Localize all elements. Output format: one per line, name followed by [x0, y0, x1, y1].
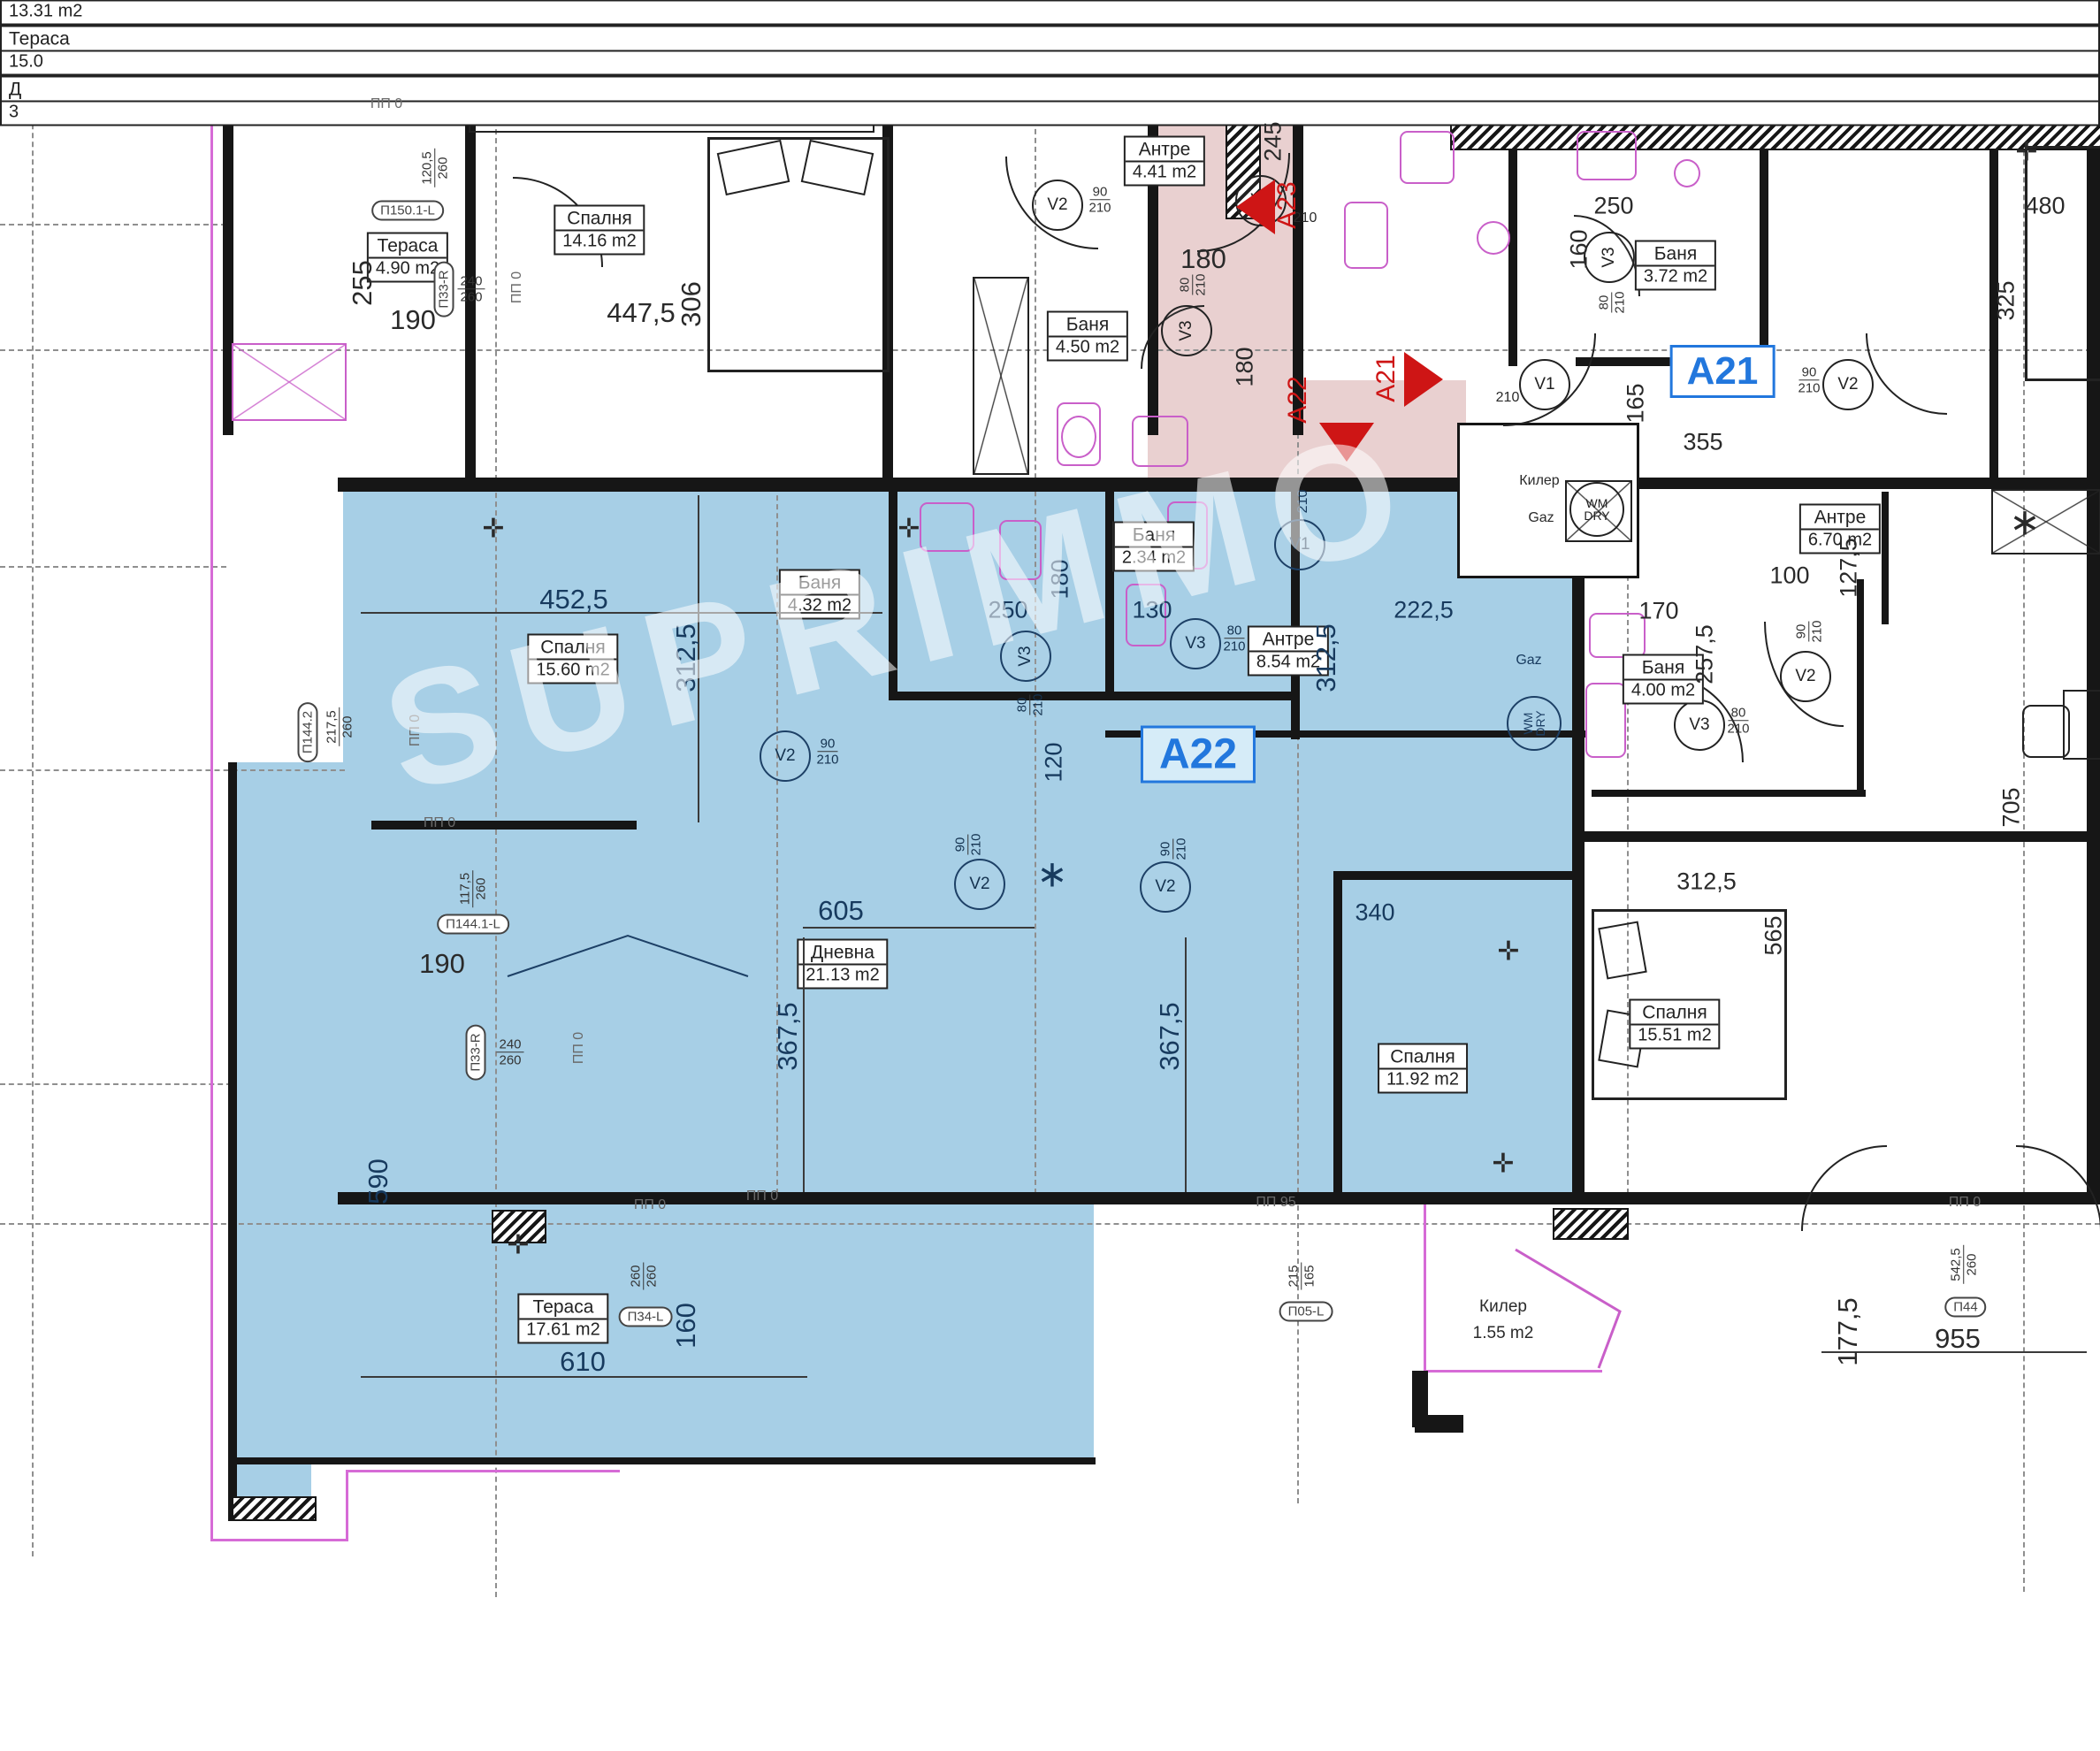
- room-area: 11.92 m2: [1379, 1068, 1466, 1092]
- dim-text: 250: [1593, 193, 1633, 220]
- door-width: 80: [1014, 695, 1030, 715]
- room-name: Дневна: [798, 941, 886, 964]
- dim-text: 165: [1623, 383, 1650, 423]
- door-width: 80: [1596, 293, 1612, 313]
- door-width: 90: [952, 835, 968, 855]
- vent-circle: V2: [1780, 651, 1831, 702]
- size-a: 240: [457, 273, 485, 289]
- panel-size: 542,5260: [1948, 1245, 1980, 1284]
- dim-text: 312,5: [670, 623, 702, 692]
- room-name: Антре: [1801, 506, 1879, 529]
- door-height: 210: [1727, 722, 1749, 737]
- boiler-symbol: ∗: [2009, 501, 2040, 544]
- sink: [1577, 131, 1637, 180]
- vent-circle: V2: [1822, 359, 1874, 410]
- room-label-terasa-sw: Тераса17.61 m2: [517, 1294, 608, 1344]
- wall: [1333, 871, 1342, 1199]
- door-size: 90210: [1088, 184, 1111, 216]
- vent-circle: V2: [1140, 861, 1191, 913]
- pp-mark: ПП 0: [370, 96, 402, 112]
- dim-text: 355: [1683, 429, 1722, 456]
- wall: [338, 1192, 1585, 1204]
- dim-text: 222,5: [1394, 597, 1454, 624]
- sink: [1400, 131, 1455, 184]
- door-width: 80: [1729, 705, 1749, 721]
- dim-text: 255: [347, 260, 378, 306]
- size-a: 240: [496, 1036, 523, 1052]
- panel-tag: П05-L: [1279, 1302, 1333, 1322]
- door-height: 210: [1613, 291, 1628, 313]
- kiler-shaft-label: Килер: [1519, 473, 1559, 489]
- panel-size: 240260: [496, 1036, 523, 1068]
- gaz-label: Gaz: [1516, 653, 1541, 669]
- vent-circle: V3: [1161, 305, 1212, 356]
- window-axis-symbol: ✛: [897, 514, 920, 545]
- panel-tag: П44: [1944, 1297, 1986, 1318]
- dim-text: 447,5: [607, 297, 676, 329]
- size-a: 120,5: [419, 149, 435, 187]
- terrace-planter: [232, 343, 347, 421]
- size-a: 215: [1286, 1262, 1302, 1289]
- grid-axis: [0, 224, 226, 226]
- shower-head: [1477, 221, 1510, 255]
- entrance-label-a22: A22: [1283, 376, 1313, 423]
- panel-size: 117,5260: [457, 870, 489, 907]
- panel-tag: П34-L: [619, 1307, 673, 1327]
- room-name: Баня: [1115, 524, 1193, 547]
- room-label-spalnya-1560: Спалня15.60 m2: [527, 634, 618, 684]
- wall: [889, 692, 1295, 700]
- room-area: 17.61 m2: [519, 1319, 607, 1342]
- vent-circle: V2: [760, 730, 811, 782]
- door-width: 90: [1090, 184, 1111, 200]
- size-a: 542,5: [1948, 1245, 1964, 1284]
- grid-axis: [776, 478, 778, 1203]
- room-area: 15.51 m2: [1630, 1024, 1718, 1048]
- sink: [1132, 416, 1188, 467]
- door-width: 90: [1793, 622, 1809, 642]
- door-height: 210: [1031, 693, 1046, 715]
- dim-text: 565: [1760, 915, 1788, 955]
- door-size: 80210: [1727, 705, 1749, 737]
- panel-tag: П33-R: [466, 1024, 486, 1080]
- property-line: [210, 85, 213, 1541]
- entrance-arrow-a22: [1319, 423, 1374, 462]
- room-name: Тераса: [369, 234, 447, 257]
- dim-text: 180: [1047, 559, 1074, 599]
- unit-box-a21: A21: [1670, 345, 1775, 398]
- pillar: [1415, 1415, 1463, 1433]
- door-size: 80210: [1596, 291, 1628, 313]
- door-size: 90210: [1793, 620, 1825, 642]
- door-height: 210: [969, 833, 984, 855]
- size-a: 117,5: [457, 870, 473, 907]
- vent-circle: V2: [954, 859, 1005, 910]
- wall: [1585, 831, 2100, 842]
- door-arc: [1866, 333, 1947, 415]
- room-label-kiler-name: Килер: [1479, 1297, 1527, 1317]
- wall: [338, 478, 1585, 492]
- panel-tag: П150.1-L: [371, 201, 444, 221]
- size-b: 260: [1965, 1253, 1980, 1275]
- pp-mark: ПП 0: [746, 1189, 778, 1204]
- dim-text: 340: [1355, 899, 1394, 927]
- wall: [889, 492, 897, 699]
- pillar-hatched: [1553, 1208, 1629, 1240]
- size-b: 260: [340, 715, 355, 738]
- wall: [1882, 492, 1889, 624]
- size-b: 260: [499, 1053, 521, 1068]
- door-size: 90210: [1157, 837, 1189, 860]
- size-b: 165: [1302, 1265, 1317, 1287]
- toilet: [1344, 202, 1388, 269]
- toilet-bowl: [1061, 416, 1096, 458]
- room-name: Антре: [1126, 138, 1203, 161]
- dim-text: 160: [670, 1303, 702, 1349]
- room-label-dnevna: Дневна21.13 m2: [797, 939, 888, 990]
- dim-text: 190: [390, 304, 436, 336]
- door-height: 210: [1295, 490, 1311, 514]
- panel-tag: П144.2: [298, 702, 318, 762]
- dim-text: 312,5: [1310, 623, 1342, 692]
- washer-dryer-symbol: WM DRY: [1507, 696, 1562, 751]
- dresser-mirror-arrows: [502, 930, 753, 980]
- pantry-outline: [1424, 1203, 1426, 1373]
- dim-text: 250: [988, 597, 1027, 624]
- boiler-niche: [1991, 489, 2100, 554]
- dim-text: 705: [1998, 787, 2026, 827]
- dim-text: 605: [818, 895, 864, 927]
- entrance-arrow-a23: [1236, 180, 1275, 234]
- pp-mark: ПП 0: [634, 1197, 666, 1213]
- window-axis-symbol: ✛: [2015, 137, 2037, 168]
- dim-text: 257,5: [1691, 624, 1719, 684]
- room-name: Баня: [781, 571, 859, 594]
- room-name: Тераса: [2, 27, 2098, 50]
- dim-text: 120: [1041, 742, 1068, 782]
- size-b: 260: [460, 290, 482, 305]
- room-label-terasa-se: Тераса15.0: [0, 26, 2100, 76]
- room-name: Тераса: [519, 1296, 607, 1319]
- wm-text: WM: [1522, 713, 1534, 735]
- room-label-banya-450: Баня4.50 m2: [1047, 311, 1128, 362]
- pp-mark: ПП 95: [1256, 1195, 1295, 1211]
- dim-text: 955: [1935, 1323, 1981, 1355]
- washer-dryer-symbol: WM DRY: [1569, 482, 1624, 537]
- door-size: 80210: [1014, 693, 1046, 715]
- room-area: 14.16 m2: [555, 230, 643, 254]
- drain: [1674, 159, 1700, 187]
- grid-axis: [0, 769, 345, 771]
- room-name: Спалня: [1630, 1001, 1718, 1024]
- closet: [973, 277, 1029, 475]
- grid-axis: [0, 1083, 232, 1085]
- dim-text: 100: [1769, 562, 1809, 590]
- room-label-spalnya-1551: Спалня15.51 m2: [1629, 999, 1720, 1050]
- room-area: 4.32 m2: [781, 594, 859, 618]
- toilet: [1589, 613, 1646, 658]
- wall: [1572, 492, 1585, 1199]
- entrance-label-a23: A23: [1272, 181, 1302, 228]
- size-b: 260: [645, 1265, 660, 1287]
- room-name: Баня: [1049, 313, 1126, 336]
- window-axis-symbol: ✛: [507, 1230, 529, 1261]
- sink: [920, 502, 974, 552]
- size-b: 260: [474, 877, 489, 899]
- grid-axis: [0, 1223, 2100, 1225]
- window-axis-symbol: ✛: [482, 514, 504, 545]
- room-name: Спалня: [555, 207, 643, 230]
- door-width: 90: [1157, 839, 1173, 860]
- dim-text: 610: [560, 1346, 606, 1378]
- wm-text: WM: [1586, 497, 1608, 509]
- wall: [1760, 145, 1768, 366]
- room-label-banya-234: Баня2.34 m2: [1113, 522, 1195, 572]
- wall: [1333, 871, 1585, 880]
- window-axis-symbol: ✛: [1492, 1149, 1514, 1180]
- entrance-label-a21: A21: [1371, 355, 1401, 401]
- door-width: 80: [1225, 623, 1245, 638]
- dim-text: 452,5: [539, 584, 608, 616]
- dim-text: 130: [1132, 597, 1172, 624]
- vent-circle: V3: [1674, 700, 1725, 751]
- room-name: Спалня: [1379, 1045, 1466, 1068]
- room-label-spalnya-nw: Спалня14.16 m2: [554, 205, 645, 256]
- door-height: 210: [1088, 201, 1111, 216]
- dim-text: 180: [1180, 243, 1226, 275]
- dim-text: 245: [1260, 121, 1287, 161]
- property-line: [210, 1539, 348, 1541]
- door-height: 210: [1496, 390, 1520, 406]
- dim-text: 160: [1566, 229, 1593, 269]
- unit-box-a22: A22: [1141, 726, 1256, 784]
- dim-text: 590: [363, 1158, 394, 1204]
- room-name: Спалня: [529, 636, 616, 659]
- bed: [2025, 146, 2100, 381]
- room-label-dnevna-e: Д3: [0, 76, 2100, 126]
- wall: [1592, 790, 1866, 797]
- room-area: 15.60 m2: [529, 659, 616, 683]
- vent-circle: V3: [1170, 618, 1221, 669]
- door-size: 90210: [952, 833, 984, 855]
- door-size: 80210: [1223, 623, 1245, 654]
- chair: [2022, 705, 2070, 758]
- room-label-antre-441: Антре4.41 m2: [1124, 136, 1205, 187]
- room-area: 3.72 m2: [1637, 265, 1714, 289]
- pp-mark: ПП 0: [1949, 1195, 1981, 1211]
- dry-text: DRY: [1534, 710, 1546, 736]
- hatched-wall: [232, 1496, 317, 1521]
- dim-text: 480: [2025, 193, 2065, 220]
- room-label-kiler-area: 1.55 m2: [1473, 1324, 1534, 1343]
- dim-text: 367,5: [1154, 1002, 1186, 1071]
- toilet: [999, 520, 1042, 580]
- room-area: 2.34 m2: [1115, 547, 1193, 570]
- door-height: 210: [1174, 837, 1189, 860]
- room-label-spalnya-1331: Спалня13.31 m2: [0, 0, 2100, 26]
- door-size: 80210: [1177, 273, 1209, 295]
- door-height: 210: [1810, 620, 1825, 642]
- door-width: 90: [818, 736, 838, 752]
- door-size: 90210: [816, 736, 838, 768]
- panel-size: 120,5260: [419, 149, 451, 187]
- floorplan-canvas: ∗ Килер Gaz WM DRY Gaz WM DRY ∗ V2 90210…: [0, 0, 2100, 1751]
- door-size: 90210: [1798, 364, 1820, 396]
- dim-line: [803, 927, 1035, 929]
- panel-size: 240260: [457, 273, 485, 305]
- dim-text: 170: [1638, 598, 1678, 625]
- pp-mark: ПП 0: [571, 1032, 587, 1064]
- dim-text: 190: [419, 948, 465, 980]
- panel-tag: П144.1-L: [437, 914, 509, 935]
- dim-text: 367,5: [772, 1002, 804, 1071]
- entrance-arrow-a21: [1404, 352, 1443, 407]
- wall: [1585, 478, 2100, 489]
- pillow: [1598, 921, 1647, 979]
- sink: [1585, 683, 1626, 758]
- dim-text: 325: [1993, 280, 2020, 320]
- dim-text: 177,5: [1832, 1297, 1864, 1366]
- room-area: 21.13 m2: [798, 964, 886, 988]
- vent-circle: V1: [1274, 519, 1325, 570]
- door-arc: [1801, 1145, 1887, 1231]
- dim-text: 127,5: [1836, 538, 1863, 598]
- pp-mark: ПП 0: [408, 715, 424, 746]
- size-b: 260: [436, 157, 451, 179]
- dim-line: [361, 612, 882, 614]
- room-name: Д: [2, 78, 2098, 101]
- vent-circle: V3: [1000, 631, 1051, 682]
- room-area: 3: [2, 101, 2098, 125]
- wall: [228, 762, 237, 1521]
- panel-size: 215165: [1286, 1262, 1317, 1289]
- door-height: 210: [1798, 381, 1820, 396]
- pp-mark: ПП 0: [509, 271, 525, 303]
- door-height: 210: [816, 753, 838, 768]
- door-width: 80: [1177, 275, 1193, 295]
- size-a: 260: [628, 1262, 644, 1289]
- room-name: Баня: [1637, 242, 1714, 265]
- gaz-label: Gaz: [1528, 510, 1554, 526]
- boiler-symbol: ∗: [1036, 853, 1067, 896]
- wall: [1857, 579, 1864, 796]
- dim-text: 306: [676, 281, 707, 327]
- room-area: 4.41 m2: [1126, 161, 1203, 185]
- grid-axis: [0, 566, 226, 568]
- door-height: 210: [1194, 273, 1209, 295]
- property-line: [346, 1470, 620, 1472]
- dim-text: 180: [1232, 347, 1259, 386]
- vent-circle: V2: [1032, 180, 1083, 231]
- vent-circle: V1: [1519, 359, 1570, 410]
- door-height: 210: [1223, 639, 1245, 654]
- grid-axis: [495, 85, 497, 1597]
- dry-text: DRY: [1584, 509, 1609, 522]
- room-area: 4.50 m2: [1049, 336, 1126, 360]
- room-label-spalnya-1192: Спалня11.92 m2: [1378, 1044, 1468, 1094]
- room-area: 15.0: [2, 50, 2098, 74]
- room-area: 13.31 m2: [2, 0, 2098, 24]
- grid-axis: [32, 53, 34, 1556]
- dim-text: 312,5: [1676, 868, 1737, 896]
- panel-size: 260260: [628, 1262, 660, 1289]
- property-line: [346, 1470, 348, 1541]
- wall: [371, 821, 637, 830]
- size-a: 217,5: [324, 707, 340, 746]
- door-width: 90: [1799, 364, 1820, 380]
- pp-mark: ПП 0: [424, 815, 455, 831]
- panel-tag: П33-R: [434, 261, 454, 317]
- room-label-banya-372: Баня3.72 m2: [1635, 241, 1716, 291]
- panel-size: 217,5260: [324, 707, 355, 746]
- window-axis-symbol: ✛: [1497, 937, 1519, 967]
- terrace-parapet: [232, 1457, 1096, 1464]
